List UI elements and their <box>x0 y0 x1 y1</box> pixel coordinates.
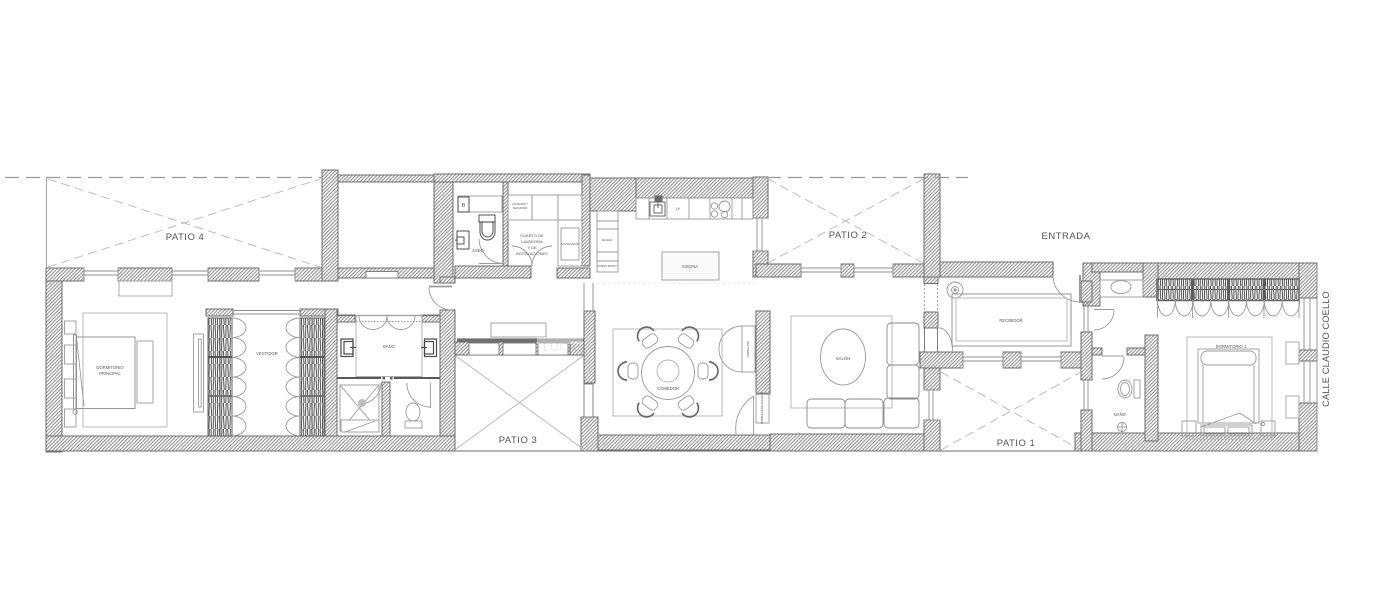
svg-text:RECIBIDOR: RECIBIDOR <box>999 318 1022 323</box>
svg-text:HORNO MICRO: HORNO MICRO <box>597 264 616 268</box>
svg-text:BAÑO: BAÑO <box>383 344 396 349</box>
svg-text:DORMITORIO: DORMITORIO <box>96 365 124 370</box>
svg-text:INSTALACIONES: INSTALACIONES <box>516 251 548 256</box>
svg-text:ASEO: ASEO <box>472 248 484 253</box>
svg-text:B: B <box>462 203 466 209</box>
svg-text:ACUMULADOR: ACUMULADOR <box>561 242 580 246</box>
svg-text:SECADORA: SECADORA <box>513 206 528 210</box>
svg-text:LUCAS: LUCAS <box>543 340 586 354</box>
svg-text:SALÓN: SALÓN <box>836 356 850 361</box>
svg-text:PATIO 4: PATIO 4 <box>166 232 205 243</box>
svg-text:MUEBLE REFRIGERADOR: MUEBLE REFRIGERADOR <box>760 392 764 424</box>
svg-text:DORMITORIO 1: DORMITORIO 1 <box>1216 344 1247 349</box>
svg-text:PATIO 3: PATIO 3 <box>499 435 538 446</box>
svg-text:PATIO 1: PATIO 1 <box>997 438 1036 449</box>
svg-text:COMEDOR: COMEDOR <box>657 386 679 391</box>
svg-text:VESTIDOR: VESTIDOR <box>256 351 277 356</box>
svg-text:MUEBLE BAR: MUEBLE BAR <box>746 341 750 358</box>
svg-text:PATIO 2: PATIO 2 <box>829 230 868 241</box>
svg-text:Y DE: Y DE <box>527 245 537 250</box>
svg-text:ENTRADA: ENTRADA <box>1042 231 1091 242</box>
svg-text:COCINA: COCINA <box>682 264 698 269</box>
svg-text:BAÑO: BAÑO <box>1114 412 1127 417</box>
svg-text:LAVADORA: LAVADORA <box>521 239 543 244</box>
svg-text:CUARTO DE: CUARTO DE <box>520 233 544 238</box>
svg-text:NEVERA: NEVERA <box>602 238 613 242</box>
svg-text:LAVADORA Y: LAVADORA Y <box>512 202 528 206</box>
svg-text:PRINCIPAL: PRINCIPAL <box>99 371 121 376</box>
svg-text:CALLE CLAUDIO COELLO: CALLE CLAUDIO COELLO <box>1321 291 1331 407</box>
